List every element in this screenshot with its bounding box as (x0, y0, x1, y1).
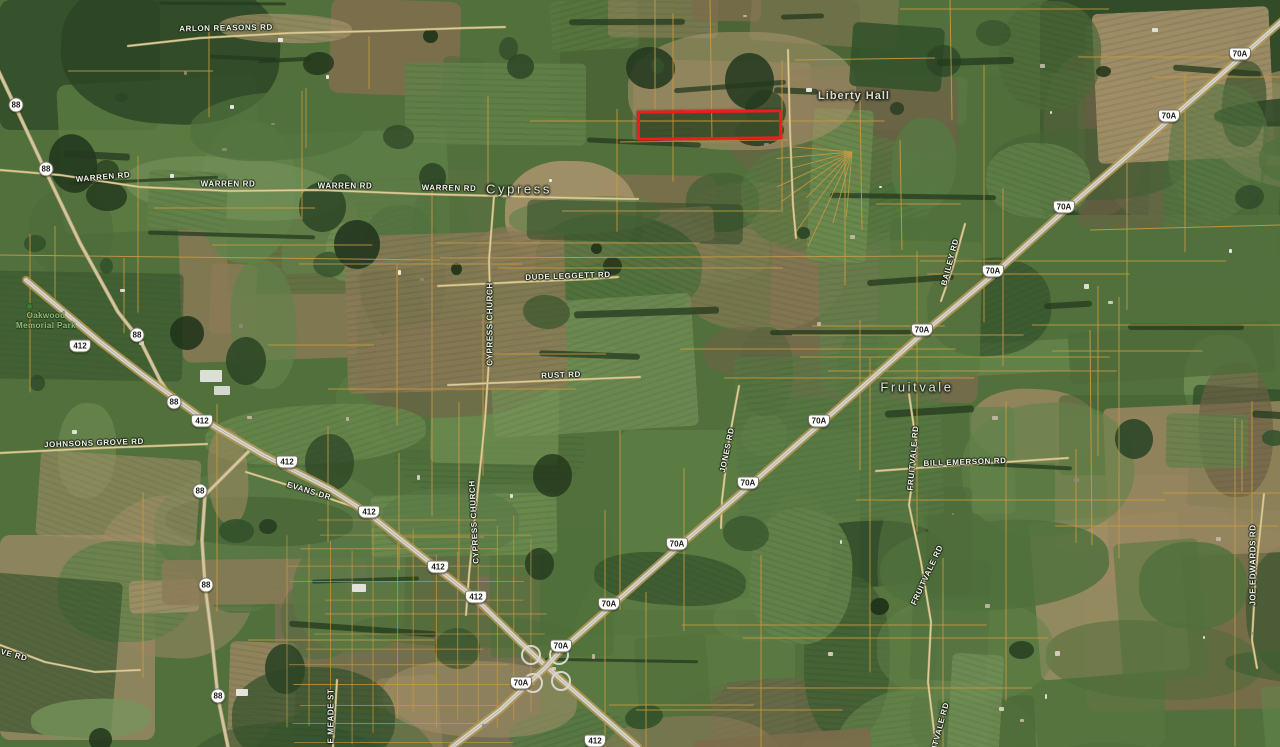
route-shield-88: 88 (9, 98, 24, 113)
route-shield-70a: 70A (510, 677, 532, 690)
road-label: DUDE LEGGETT RD (525, 270, 611, 282)
route-shield-88: 88 (39, 162, 54, 177)
route-shield-412: 412 (69, 340, 91, 353)
route-shield-88: 88 (193, 484, 208, 499)
route-shield-70a: 70A (1229, 48, 1251, 61)
selected-parcel-outline[interactable] (637, 109, 782, 141)
route-shield-70a: 70A (550, 640, 572, 653)
road-label: WARREN RD (75, 170, 130, 184)
park-label-line: Oakwood (16, 311, 76, 321)
road-label: CYPRESS CHURCH (486, 282, 495, 366)
route-shield-412: 412 (584, 735, 606, 747)
road-label: RUST RD (541, 370, 581, 380)
route-shield-412: 412 (276, 456, 298, 469)
park-label-line: Memorial Park (16, 321, 76, 331)
route-shield-412: 412 (427, 561, 449, 574)
park-tree-icon (26, 303, 33, 310)
route-shield-70a: 70A (982, 265, 1004, 278)
road-label: BILL EMERSON RD (923, 456, 1006, 468)
map-canvas[interactable]: ARLON REASONS RDWARREN RDWARREN RDWARREN… (0, 0, 1280, 747)
road-label: FRUITVALE RD (906, 425, 921, 491)
road-label: WARREN RD (318, 182, 373, 191)
place-label: Liberty Hall (818, 90, 890, 102)
route-shield-70a: 70A (598, 598, 620, 611)
route-shield-88: 88 (130, 328, 145, 343)
route-shield-412: 412 (465, 591, 487, 604)
road-label: JOHNSONS GROVE RD (44, 437, 144, 449)
road-label: E MEADE ST (327, 689, 336, 744)
route-shield-88: 88 (167, 395, 182, 410)
route-shield-88: 88 (211, 689, 226, 704)
route-shield-70a: 70A (1158, 110, 1180, 123)
route-shield-70a: 70A (666, 538, 688, 551)
road-label: WARREN RD (201, 180, 256, 189)
road-label: WARREN RD (422, 183, 477, 193)
route-shield-88: 88 (199, 578, 214, 593)
route-shield-70a: 70A (737, 477, 759, 490)
road-label: FRUITVALE RD (925, 701, 951, 747)
place-label: Cypress (486, 182, 552, 197)
park-label: OakwoodMemorial Park (16, 311, 76, 331)
road-label: JOE EDWARDS RD (1249, 524, 1258, 605)
route-shield-412: 412 (358, 506, 380, 519)
road-label: VE RD (0, 647, 28, 663)
place-label: Fruitvale (880, 380, 953, 395)
route-shield-70a: 70A (911, 324, 933, 337)
road-label: JONES RD (718, 427, 736, 474)
route-shield-70a: 70A (1053, 201, 1075, 214)
road-label: ARLON REASONS RD (179, 23, 273, 34)
road-label: EVANS DR (286, 480, 332, 502)
route-shield-70a: 70A (808, 415, 830, 428)
road-label: CYPRESS CHURCH (467, 480, 480, 564)
road-label: FRUITVALE RD (909, 544, 945, 607)
road-label: BAILEY RD (939, 237, 960, 286)
route-shield-412: 412 (191, 415, 213, 428)
